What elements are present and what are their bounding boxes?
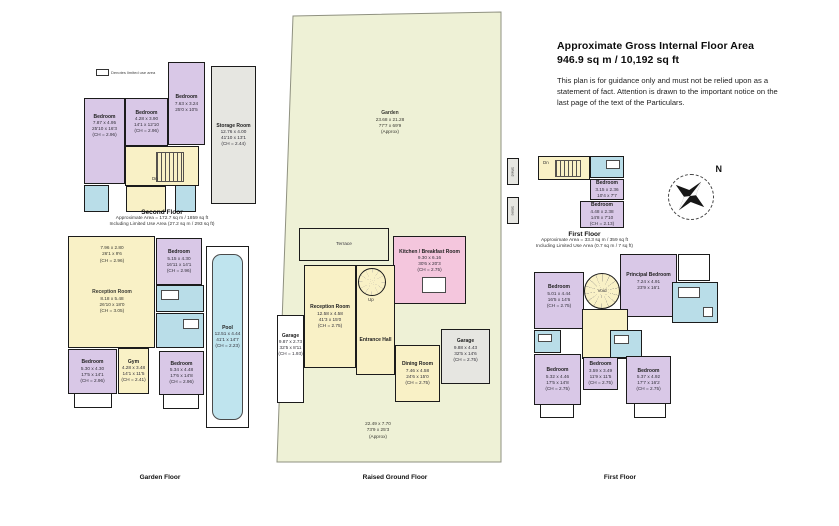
- room-dim-imperial: 17'5 x 14'8: [545, 380, 569, 386]
- room-garage-left: Garage 9.87 x 2.73 32'5 x 8'11 (CH = 1.9…: [277, 315, 304, 403]
- room-name: Dining Room: [402, 361, 433, 368]
- kitchen-island-icon: [422, 277, 446, 293]
- room-dim-metric: 7.63 x 3.24: [175, 101, 198, 107]
- front-room-dims: 7.96 x 2.80 26'1 x 9'6 (CH = 2.96): [87, 245, 137, 264]
- room-dim-imperial: 16'11 x 14'1: [167, 262, 192, 268]
- stairs-down-label: Dn: [152, 176, 158, 181]
- floor-title: Garden Floor: [110, 474, 210, 481]
- room-name: Bedroom: [588, 361, 612, 368]
- room-ceiling-height: (CH = 2.44): [216, 141, 250, 147]
- room-dim-imperial: 25'0 x 10'5: [175, 107, 198, 113]
- garden-name: Garden: [356, 110, 424, 117]
- sink-icon: [703, 307, 713, 317]
- pool-room: Pool 12.51 x 4.44 41'1 x 14'7 (CH = 2.23…: [206, 246, 249, 428]
- garden-label: Garden 23.68 x 21.28 77'7 x 69'9 (Approx…: [356, 110, 424, 136]
- legend-label: Denotes limited use area: [111, 70, 155, 75]
- floor-title: Raised Ground Floor: [325, 474, 465, 481]
- first-floor-label: First Floor: [560, 474, 680, 481]
- room-ceiling-height: (CH = 2.96): [87, 258, 137, 264]
- second-floor-label: Second Floor Approximate Area = 172.7 sq…: [92, 209, 232, 229]
- room-reception-rgf: Reception Room 12.58 x 4.58 41'3 x 15'0 …: [304, 265, 356, 368]
- room-name: Principal Bedroom: [626, 272, 670, 279]
- bay-window: [634, 403, 666, 418]
- bathroom-first-mid: [610, 330, 642, 358]
- first-floor-annex-label: First Floor Approximate Area = 33.3 sq m…: [512, 231, 657, 251]
- room-ceiling-height: (CH = 2.75): [453, 357, 477, 363]
- bathroom-garden-1: [156, 285, 204, 312]
- bay-window: [74, 393, 112, 408]
- compass-star-icon: [663, 169, 716, 222]
- room-dim-metric: 9.88 x 4.43: [453, 345, 477, 351]
- room-ceiling-height: (CH = 2.13): [590, 221, 614, 227]
- bathtub-icon: [161, 290, 179, 300]
- shed-label: Shed: [511, 167, 516, 176]
- room-ceiling-height: (CH = 3.05): [83, 308, 141, 314]
- room-dim-imperial: 32'5 x 14'6: [453, 351, 477, 357]
- store: Store: [507, 197, 519, 224]
- floor-title: First Floor: [560, 474, 680, 481]
- bay-window: [540, 404, 574, 418]
- bathroom-annex: [590, 156, 624, 178]
- room-bedroom-large-annex: Bedroom 4.48 x 2.38 14'8 x 7'10 (CH = 2.…: [580, 201, 624, 228]
- room-bedroom-top-garden: Bedroom 5.15 x 4.30 16'11 x 14'1 (CH = 2…: [156, 238, 202, 285]
- garden-approx: (Approx): [356, 129, 424, 135]
- room-ceiling-height: (CH = 2.75): [636, 386, 660, 392]
- bathtub-icon: [538, 334, 552, 342]
- room-bedroom-left-garden: Bedroom 5.30 x 4.30 17'5 x 14'1 (CH = 2.…: [68, 349, 117, 394]
- floor-title: First Floor: [512, 231, 657, 238]
- bathtub-icon: [183, 319, 199, 329]
- room-name: Bedroom: [175, 94, 198, 101]
- room-bedroom-nw-first: Bedroom 5.01 x 4.44 16'5 x 14'6 (CH = 2.…: [534, 272, 584, 329]
- room-dim-metric: 4.48 x 2.38: [590, 209, 614, 215]
- room-dim-metric: 5.15 x 4.30: [167, 256, 192, 262]
- room-ceiling-height: (CH = 2.96): [92, 132, 117, 138]
- room-dim-imperial: 23'9 x 16'1: [626, 285, 670, 291]
- room-bedroom-s-first: Bedroom 3.59 x 3.49 11'9 x 11'5 (CH = 2.…: [583, 357, 618, 390]
- room-bedroom-right-garden: Bedroom 5.34 x 4.48 17'6 x 14'8 (CH = 2.…: [159, 351, 204, 395]
- room-bedroom-small-annex: Bedroom 3.15 x 2.36 10'4 x 7'7: [590, 179, 624, 200]
- front-garden-approx: (Approx): [344, 434, 412, 440]
- room-ceiling-height: (CH = 2.75): [399, 267, 460, 273]
- gross-floor-area-line1: Approximate Gross Internal Floor Area: [557, 40, 785, 54]
- room-name: Bedroom: [545, 367, 569, 374]
- room-dim-metric: 7.46 x 4.58: [402, 368, 433, 374]
- staircase: [555, 160, 581, 177]
- shed: Shed: [507, 158, 519, 185]
- floorplan-page: Approximate Gross Internal Floor Area 94…: [0, 0, 839, 526]
- bathtub-icon: [678, 287, 700, 298]
- room-garage-right: Garage 9.88 x 4.43 32'5 x 14'6 (CH = 2.7…: [441, 329, 490, 384]
- room-bedroom-sw-first: Bedroom 5.32 x 4.46 17'5 x 14'8 (CH = 2.…: [534, 354, 581, 405]
- legend-swatch-icon: [96, 69, 109, 76]
- void-label: Void: [596, 288, 607, 294]
- gross-floor-area-title: Approximate Gross Internal Floor Area 94…: [557, 40, 785, 67]
- room-name: Entrance Hall: [360, 337, 392, 344]
- room-ceiling-height: (CH = 2.75): [588, 380, 612, 386]
- room-bedroom-se-first: Bedroom 5.37 x 4.92 17'7 x 16'2 (CH = 2.…: [626, 356, 671, 404]
- room-name: Reception Room: [83, 289, 141, 296]
- stairs-down-label: Dn: [543, 160, 549, 165]
- bathroom-first-right: [672, 282, 718, 323]
- room-bedroom-mid-second: Bedroom 4.28 x 3.90 14'1 x 12'10 (CH = 2…: [125, 98, 168, 146]
- room-dim-imperial: 17'5 x 14'1: [80, 372, 104, 378]
- bathroom-garden-2: [156, 313, 204, 348]
- room-name: Reception Room: [310, 304, 350, 311]
- room-name: Terrace: [336, 241, 352, 247]
- limited-use-legend: Denotes limited use area: [96, 69, 155, 76]
- stairs-up-label: Up: [368, 297, 374, 302]
- room-ceiling-height: (CH = 2.41): [121, 377, 145, 383]
- room-dim-imperial: 24'6 x 15'0: [402, 374, 433, 380]
- room-ceiling-height: (CH = 2.75): [402, 380, 433, 386]
- room-ceiling-height: (CH = 2.75): [547, 303, 571, 309]
- room-dim-metric: 5.32 x 4.46: [545, 374, 569, 380]
- room-dim-metric: 5.30 x 4.30: [80, 366, 104, 372]
- dressing-room-first: [678, 254, 710, 281]
- room-kitchen: Kitchen / Breakfast Room 9.30 x 6.16 30'…: [393, 236, 466, 304]
- room-dim-imperial: 14'8 x 7'10: [590, 215, 614, 221]
- room-gym: Gym 4.28 x 3.48 14'1 x 11'5 (CH = 2.41): [118, 348, 149, 394]
- spiral-staircase: [358, 268, 386, 296]
- room-ceiling-height: (CH = 2.96): [169, 379, 193, 385]
- garden-floor-label: Garden Floor: [110, 474, 210, 481]
- room-name: Bedroom: [80, 359, 104, 366]
- compass-north-label: N: [716, 164, 723, 174]
- landing-second: [125, 146, 199, 186]
- room-ceiling-height: (CH = 2.96): [134, 128, 159, 134]
- room-ceiling-height: (CH = 2.75): [310, 323, 350, 329]
- room-principal-bedroom: Principal Bedroom 7.24 x 4.91 23'9 x 16'…: [620, 254, 677, 317]
- room-name: Garage: [453, 338, 477, 345]
- room-dining: Dining Room 7.46 x 4.58 24'6 x 15'0 (CH …: [395, 345, 440, 402]
- floor-area-line2: Including Limited Use Area (0.7 sq m / 7…: [512, 244, 657, 250]
- header: Approximate Gross Internal Floor Area 94…: [557, 40, 785, 108]
- reception-room-label: Reception Room 8.18 x 5.48 26'10 x 18'0 …: [83, 289, 141, 315]
- disclaimer-text: This plan is for guidance only and must …: [557, 76, 785, 108]
- room-dim-imperial: 10'4 x 7'7: [595, 193, 618, 199]
- room-ceiling-height: (CH = 2.75): [545, 386, 569, 392]
- raised-ground-floor-label: Raised Ground Floor: [325, 474, 465, 481]
- room-storage-second: Storage Room 12.76 x 4.00 41'10 x 13'1 (…: [211, 66, 256, 204]
- gross-floor-area-line2: 946.9 sq m / 10,192 sq ft: [557, 54, 785, 68]
- bathroom-first-left: [534, 330, 561, 353]
- room-dim-imperial: 16'5 x 14'6: [547, 297, 571, 303]
- room-dim-metric: 3.59 x 3.49: [588, 368, 612, 374]
- room-bedroom-left-second: Bedroom 7.87 x 4.95 25'10 x 16'3 (CH = 2…: [84, 98, 125, 184]
- staircase: [156, 152, 184, 182]
- swimming-pool: Pool 12.51 x 4.44 41'1 x 14'7 (CH = 2.23…: [212, 254, 243, 420]
- room-name: Bedroom: [547, 284, 571, 291]
- floor-area-line2: Including Limited Use Area (27.2 sq m / …: [92, 222, 232, 228]
- compass: N: [662, 164, 724, 226]
- room-dim-metric: 5.01 x 4.44: [547, 291, 571, 297]
- bathroom-second-right: [175, 185, 196, 212]
- room-name: Bedroom: [595, 180, 618, 187]
- bathtub-icon: [614, 335, 629, 344]
- room-dim-imperial: 11'9 x 11'5: [588, 374, 612, 380]
- front-garden-label: 22.49 x 7.70 73'9 x 25'3 (Approx): [344, 421, 412, 440]
- room-reception-garden: 7.96 x 2.80 26'1 x 9'6 (CH = 2.96) Recep…: [68, 236, 155, 348]
- room-ceiling-height: (CH = 1.93): [278, 351, 302, 357]
- void-stairwell: Void: [584, 273, 620, 309]
- floor-title: Second Floor: [92, 209, 232, 216]
- room-ceiling-height: (CH = 2.96): [167, 268, 192, 274]
- room-ceiling-height: (CH = 2.96): [80, 378, 104, 384]
- room-name: Bedroom: [590, 202, 614, 209]
- room-name: Bedroom: [167, 249, 192, 256]
- room-dim-metric: 3.15 x 2.36: [595, 187, 618, 193]
- room-bedroom-right-second: Bedroom 7.63 x 3.24 25'0 x 10'5: [168, 62, 205, 145]
- bathroom-second-left: [84, 185, 109, 212]
- room-ceiling-height: (CH = 2.23): [215, 343, 241, 349]
- store-label: Store: [511, 206, 516, 216]
- bay-window: [163, 394, 199, 409]
- bathtub-icon: [606, 160, 620, 169]
- terrace: Terrace: [299, 228, 389, 261]
